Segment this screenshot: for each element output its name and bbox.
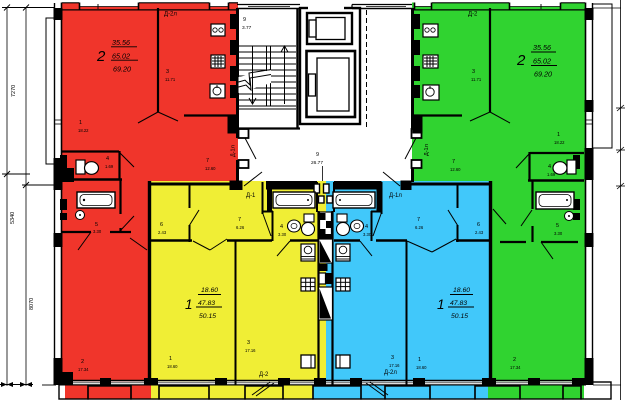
svg-text:1: 1 bbox=[437, 297, 445, 312]
svg-text:3: 3 bbox=[472, 69, 475, 75]
svg-text:4: 4 bbox=[280, 224, 283, 230]
svg-text:50.15: 50.15 bbox=[451, 313, 468, 320]
svg-text:17.16: 17.16 bbox=[389, 363, 400, 368]
svg-text:7: 7 bbox=[417, 217, 420, 223]
svg-text:2: 2 bbox=[516, 52, 526, 69]
svg-text:6: 6 bbox=[477, 222, 480, 228]
svg-text:Д-1л: Д-1л bbox=[389, 193, 402, 199]
svg-text:47.83: 47.83 bbox=[450, 300, 467, 307]
svg-text:7: 7 bbox=[452, 159, 455, 165]
svg-text:17.16: 17.16 bbox=[245, 348, 256, 353]
svg-text:12.60: 12.60 bbox=[205, 166, 216, 171]
svg-text:6: 6 bbox=[160, 222, 163, 228]
svg-text:4: 4 bbox=[365, 224, 368, 230]
svg-text:18.60: 18.60 bbox=[453, 287, 470, 294]
svg-text:3: 3 bbox=[391, 355, 394, 361]
svg-text:18.22: 18.22 bbox=[554, 140, 565, 145]
svg-text:5: 5 bbox=[95, 222, 98, 228]
svg-text:1: 1 bbox=[79, 120, 82, 126]
svg-text:11.71: 11.71 bbox=[165, 77, 176, 82]
svg-text:1.69: 1.69 bbox=[105, 164, 114, 169]
svg-text:Д-2: Д-2 bbox=[259, 372, 269, 378]
svg-text:8070: 8070 bbox=[29, 298, 35, 310]
svg-text:65.02: 65.02 bbox=[112, 52, 130, 61]
svg-text:6.26: 6.26 bbox=[415, 225, 424, 230]
svg-text:5340: 5340 bbox=[10, 212, 16, 224]
svg-text:7270: 7270 bbox=[11, 85, 17, 97]
svg-text:2: 2 bbox=[81, 359, 84, 365]
svg-text:3.30: 3.30 bbox=[93, 229, 102, 234]
svg-text:1.69: 1.69 bbox=[547, 172, 556, 177]
svg-text:1: 1 bbox=[169, 356, 172, 362]
svg-text:1: 1 bbox=[185, 297, 193, 312]
svg-text:Д-2: Д-2 bbox=[468, 12, 478, 18]
svg-text:1: 1 bbox=[418, 357, 421, 363]
svg-text:3: 3 bbox=[247, 340, 250, 346]
svg-text:7: 7 bbox=[238, 217, 241, 223]
svg-text:69.20: 69.20 bbox=[113, 65, 131, 74]
svg-text:Д-1: Д-1 bbox=[246, 193, 256, 199]
svg-text:6.26: 6.26 bbox=[236, 225, 245, 230]
svg-text:2.43: 2.43 bbox=[475, 230, 484, 235]
svg-text:3.30: 3.30 bbox=[278, 232, 287, 237]
svg-text:35.56: 35.56 bbox=[533, 43, 551, 52]
svg-text:17.34: 17.34 bbox=[510, 365, 521, 370]
svg-text:3.30: 3.30 bbox=[554, 231, 563, 236]
svg-text:26.77: 26.77 bbox=[311, 160, 323, 166]
svg-text:9: 9 bbox=[316, 152, 319, 158]
svg-text:9: 9 bbox=[243, 17, 246, 23]
svg-text:47.83: 47.83 bbox=[198, 300, 215, 307]
svg-text:18.60: 18.60 bbox=[167, 364, 178, 369]
svg-text:35.56: 35.56 bbox=[112, 38, 130, 47]
svg-text:18.60: 18.60 bbox=[416, 365, 427, 370]
svg-text:12.60: 12.60 bbox=[450, 167, 461, 172]
svg-text:4: 4 bbox=[548, 164, 551, 170]
svg-text:3.30: 3.30 bbox=[363, 232, 372, 237]
svg-text:Д-1л: Д-1л bbox=[231, 145, 237, 157]
svg-text:2: 2 bbox=[513, 357, 516, 363]
svg-text:2.43: 2.43 bbox=[158, 230, 167, 235]
svg-text:3.77: 3.77 bbox=[242, 25, 252, 31]
svg-text:50.15: 50.15 bbox=[199, 313, 216, 320]
svg-text:11.71: 11.71 bbox=[471, 77, 482, 82]
svg-text:18.22: 18.22 bbox=[78, 128, 89, 133]
svg-text:Д-1л: Д-1л bbox=[424, 144, 430, 156]
svg-text:3: 3 bbox=[166, 69, 169, 75]
svg-text:5: 5 bbox=[556, 223, 559, 229]
svg-text:69.20: 69.20 bbox=[534, 70, 552, 79]
svg-text:Д-2л: Д-2л bbox=[164, 12, 177, 18]
svg-text:2: 2 bbox=[96, 48, 106, 65]
svg-text:Д-2л: Д-2л bbox=[384, 370, 397, 376]
svg-text:17.34: 17.34 bbox=[78, 367, 89, 372]
svg-text:65.02: 65.02 bbox=[533, 57, 551, 66]
svg-text:1: 1 bbox=[557, 132, 560, 138]
svg-text:18.60: 18.60 bbox=[201, 287, 218, 294]
svg-text:4: 4 bbox=[106, 156, 109, 162]
svg-text:7: 7 bbox=[206, 158, 209, 164]
